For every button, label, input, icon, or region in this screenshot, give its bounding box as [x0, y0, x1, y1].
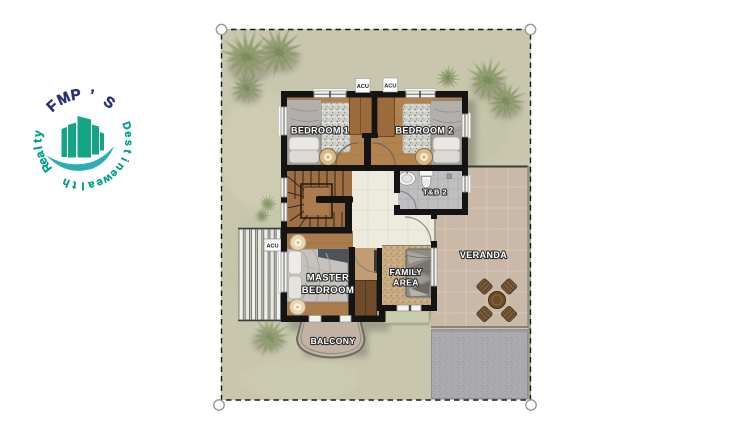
svg-text:FAMILY: FAMILY — [390, 267, 423, 277]
svg-text:l: l — [81, 180, 84, 192]
svg-text:AREA: AREA — [393, 278, 419, 288]
svg-text:T&B 2: T&B 2 — [423, 188, 447, 197]
svg-text:t: t — [30, 139, 44, 143]
svg-text:BEDROOM: BEDROOM — [302, 285, 354, 296]
svg-text:ACU: ACU — [357, 84, 369, 90]
svg-text:ACU: ACU — [384, 83, 396, 89]
svg-text:ACU: ACU — [266, 244, 278, 250]
svg-text:VERANDA: VERANDA — [460, 250, 507, 260]
svg-text:BEDROOM 1: BEDROOM 1 — [291, 126, 349, 136]
svg-text:MASTER: MASTER — [307, 273, 350, 284]
svg-text:BEDROOM 2: BEDROOM 2 — [395, 126, 453, 136]
svg-text:BALCONY: BALCONY — [311, 336, 356, 346]
svg-text:s: s — [122, 139, 134, 146]
